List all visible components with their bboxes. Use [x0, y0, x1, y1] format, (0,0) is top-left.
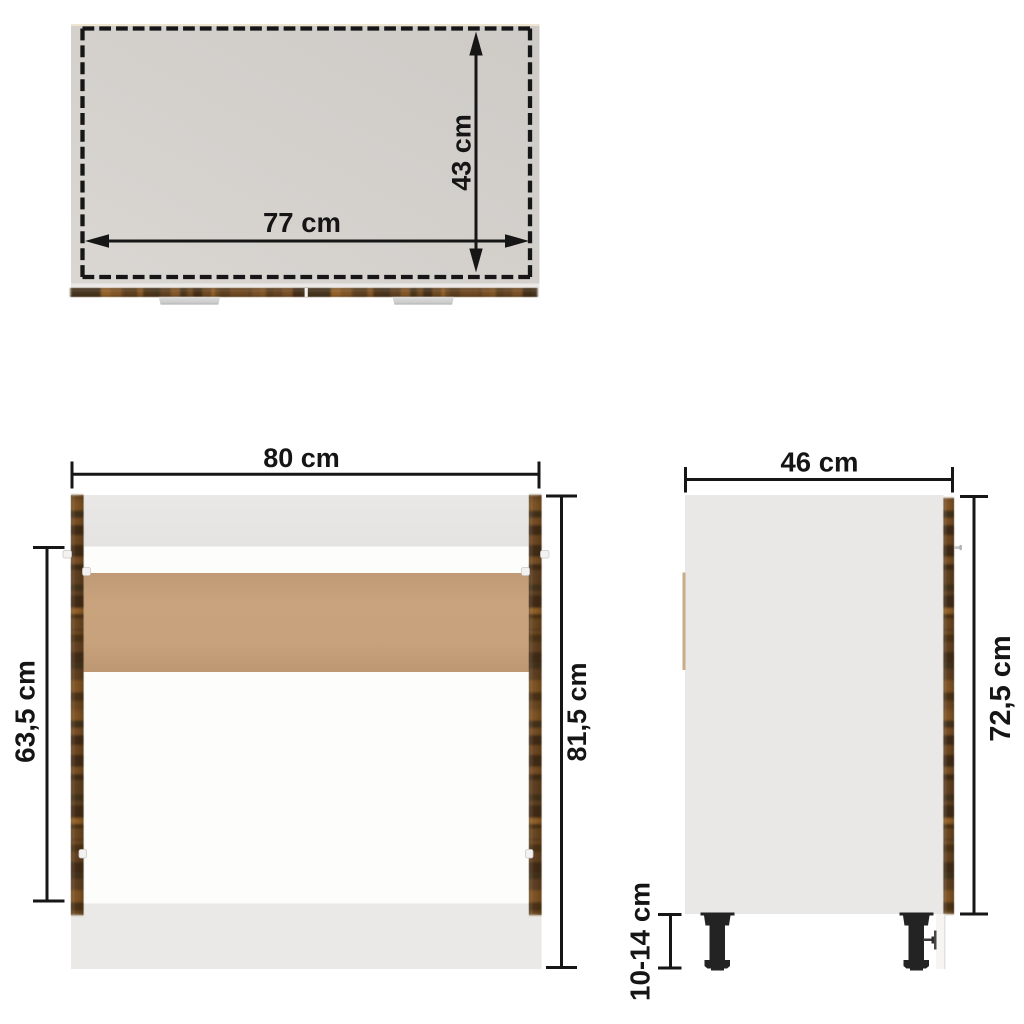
svg-text:10-14 cm: 10-14 cm	[625, 882, 656, 1001]
svg-text:77 cm: 77 cm	[263, 207, 341, 238]
svg-text:63,5 cm: 63,5 cm	[10, 660, 41, 763]
svg-text:46 cm: 46 cm	[781, 447, 859, 478]
svg-text:43 cm: 43 cm	[447, 114, 477, 191]
svg-text:80 cm: 80 cm	[263, 443, 340, 473]
svg-text:81,5 cm: 81,5 cm	[562, 662, 592, 761]
svg-text:72,5 cm: 72,5 cm	[985, 635, 1017, 741]
